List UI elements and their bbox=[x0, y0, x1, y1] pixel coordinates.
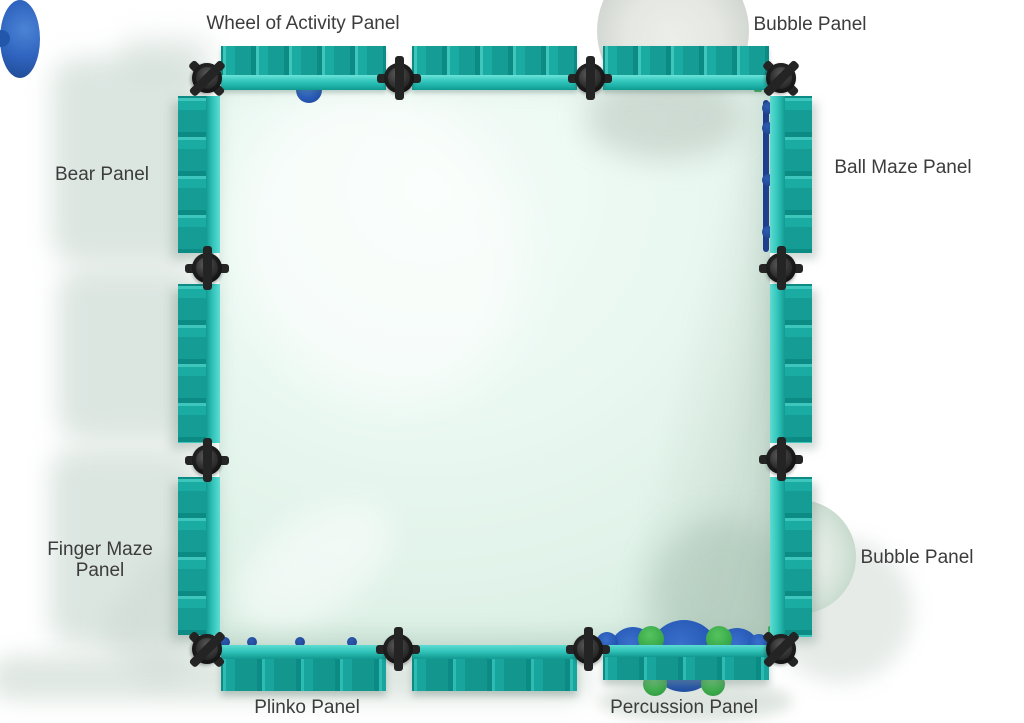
panel-blocks bbox=[603, 657, 769, 680]
connector-post-left-2 bbox=[185, 438, 229, 482]
panel-blocks bbox=[603, 46, 769, 75]
panel-bottom-middle bbox=[412, 645, 577, 691]
label-finger-maze-panel: Finger Maze Panel bbox=[40, 539, 160, 581]
panel-rail bbox=[206, 477, 220, 635]
post-hub bbox=[766, 253, 796, 283]
floor-highlight bbox=[219, 479, 411, 647]
panel-blocks bbox=[785, 284, 812, 443]
label-ball-maze-panel: Ball Maze Panel bbox=[803, 157, 1003, 178]
label-bubble-panel-top: Bubble Panel bbox=[730, 14, 890, 35]
panel-left-middle bbox=[178, 284, 220, 443]
post-hub bbox=[186, 57, 228, 99]
connector-post-bottom-2 bbox=[566, 627, 610, 671]
label-bubble-panel-right: Bubble Panel bbox=[837, 547, 997, 568]
connector-post-top-2 bbox=[568, 56, 612, 100]
bear-figure-bump bbox=[0, 0, 40, 78]
panel-blocks bbox=[178, 284, 206, 443]
panel-percussion bbox=[603, 645, 769, 680]
connector-post-right-1 bbox=[759, 246, 803, 290]
panel-blocks bbox=[221, 659, 386, 691]
panel-rail bbox=[206, 96, 220, 253]
connector-post-bottom-1 bbox=[376, 627, 420, 671]
panel-rail bbox=[770, 96, 785, 253]
connector-post-left-1 bbox=[185, 246, 229, 290]
panel-top-middle bbox=[412, 46, 577, 90]
post-hub bbox=[573, 634, 603, 664]
label-bear-panel: Bear Panel bbox=[32, 164, 172, 185]
panel-rail bbox=[412, 75, 577, 90]
label-percussion-panel: Percussion Panel bbox=[594, 697, 774, 718]
panel-rail bbox=[221, 75, 386, 90]
panel-bubble-top bbox=[603, 46, 769, 90]
panel-rail bbox=[770, 477, 785, 637]
post-hub bbox=[760, 628, 802, 670]
post-hub bbox=[192, 253, 222, 283]
panel-plinko bbox=[221, 645, 386, 691]
panel-right-middle bbox=[770, 284, 812, 443]
panel-finger-maze bbox=[178, 477, 220, 635]
panel-blocks bbox=[412, 659, 577, 691]
label-plinko-panel: Plinko Panel bbox=[227, 697, 387, 718]
panel-blocks bbox=[178, 477, 206, 635]
panel-wheel-of-activity bbox=[221, 46, 386, 90]
post-hub bbox=[192, 445, 222, 475]
post-hub bbox=[575, 63, 605, 93]
panel-rail bbox=[221, 645, 386, 659]
panel-blocks bbox=[178, 96, 206, 253]
post-hub bbox=[384, 63, 414, 93]
panel-blocks bbox=[412, 46, 577, 75]
panel-rail bbox=[412, 645, 577, 659]
panel-blocks bbox=[221, 46, 386, 75]
panel-bear bbox=[178, 96, 220, 253]
panel-blocks bbox=[785, 477, 812, 637]
panel-bubble-right bbox=[770, 477, 812, 637]
panel-rail bbox=[770, 284, 785, 443]
panel-rail bbox=[603, 645, 769, 657]
label-wheel-of-activity-panel: Wheel of Activity Panel bbox=[183, 13, 423, 34]
connector-post-right-2 bbox=[759, 437, 803, 481]
panel-rail bbox=[206, 284, 220, 443]
play-panel-top-view: Wheel of Activity Panel Bubble Panel Bea… bbox=[0, 0, 1024, 723]
connector-post-top-1 bbox=[377, 56, 421, 100]
post-hub bbox=[383, 634, 413, 664]
post-hub bbox=[186, 628, 228, 670]
post-hub bbox=[766, 444, 796, 474]
panel-rail bbox=[603, 75, 769, 90]
enclosure-floor bbox=[219, 88, 770, 647]
post-hub bbox=[760, 57, 802, 99]
